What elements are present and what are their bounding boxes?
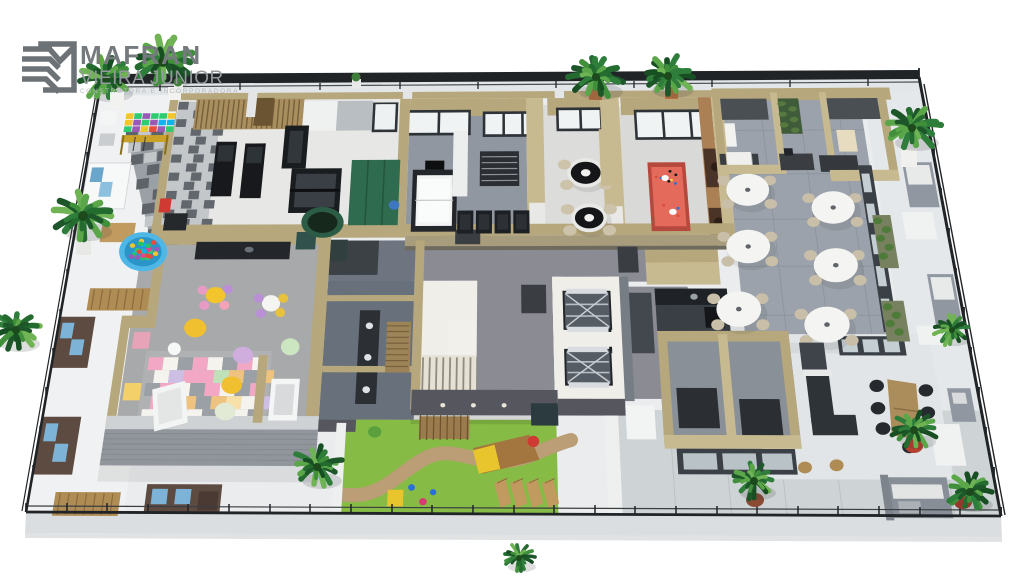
svg-text:VIEIRA JUNIOR: VIEIRA JUNIOR bbox=[80, 68, 224, 89]
svg-text:CONSTRUTORA E INCORPORADORA: CONSTRUTORA E INCORPORADORA bbox=[80, 88, 239, 95]
svg-text:MAFRAN: MAFRAN bbox=[80, 40, 202, 70]
